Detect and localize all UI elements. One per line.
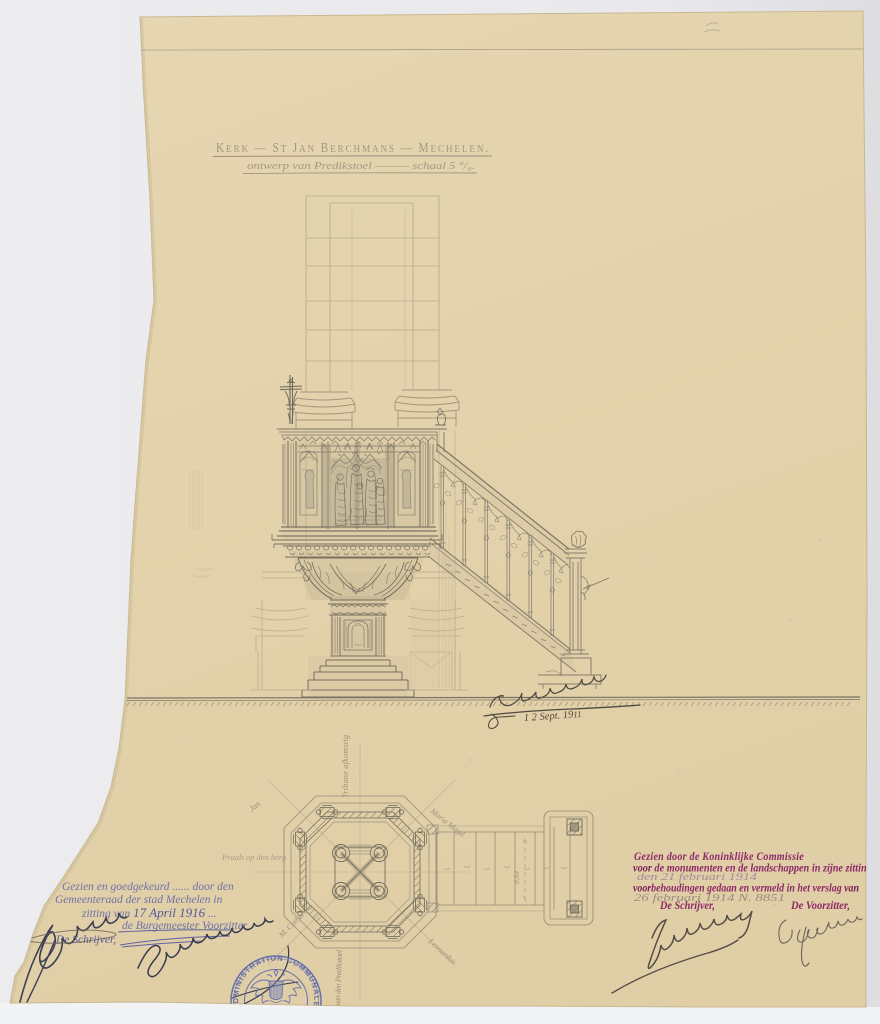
svg-text:Tribune afkomstig: Tribune afkomstig: [341, 735, 350, 798]
svg-text:Gezien door de Koninklijke: Gezien door de Koninklijke Commissie: [634, 849, 804, 863]
svg-text:KERK — ST JAN BERCHMANS — MECH: KERK — ST JAN BERCHMANS — MECHELEN.: [216, 140, 490, 155]
svg-text:0,64: 0,64: [512, 871, 521, 884]
svg-text:zitting van 17 April 1916 ..: zitting van 17 April 1916 ...: [81, 905, 217, 920]
svg-text:ontwerp van Predikstoel ——— sc: ontwerp van Predikstoel ——— schaal 5 °/₀…: [247, 160, 475, 172]
svg-text:den 21 februari 1914: den 21 februari 1914: [637, 872, 757, 883]
svg-text:De Voorzitter,: De Voorzitter,: [790, 900, 850, 912]
svg-text:Praalt op den berg: Praalt op den berg: [221, 852, 286, 862]
svg-text:De Schrijver,: De Schrijver,: [659, 900, 715, 912]
svg-text:Gezien en goedgekeurd .....: Gezien en goedgekeurd ...... door den: [62, 881, 234, 893]
